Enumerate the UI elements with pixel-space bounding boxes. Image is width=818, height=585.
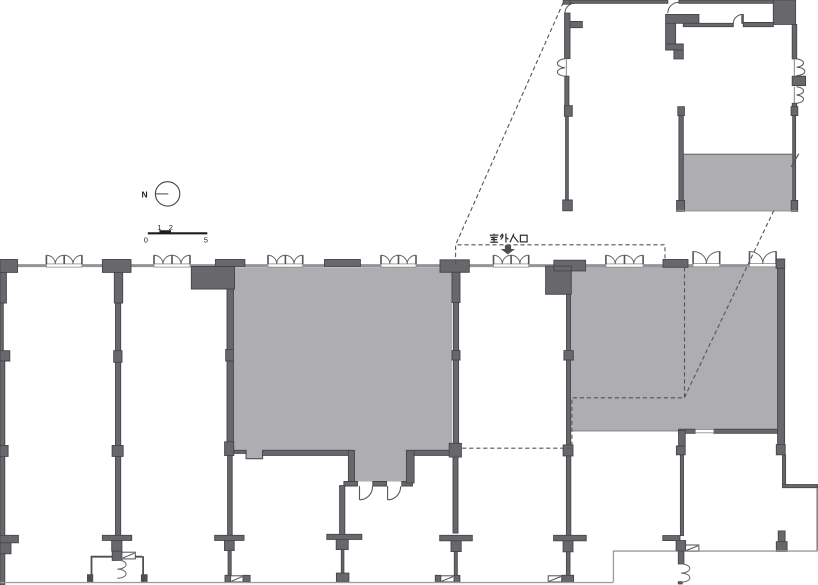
svg-text:1: 1 [157,223,161,232]
svg-text:5: 5 [204,235,208,244]
svg-text:N: N [142,190,148,200]
svg-text:0: 0 [144,235,148,244]
svg-text:2: 2 [169,223,173,232]
